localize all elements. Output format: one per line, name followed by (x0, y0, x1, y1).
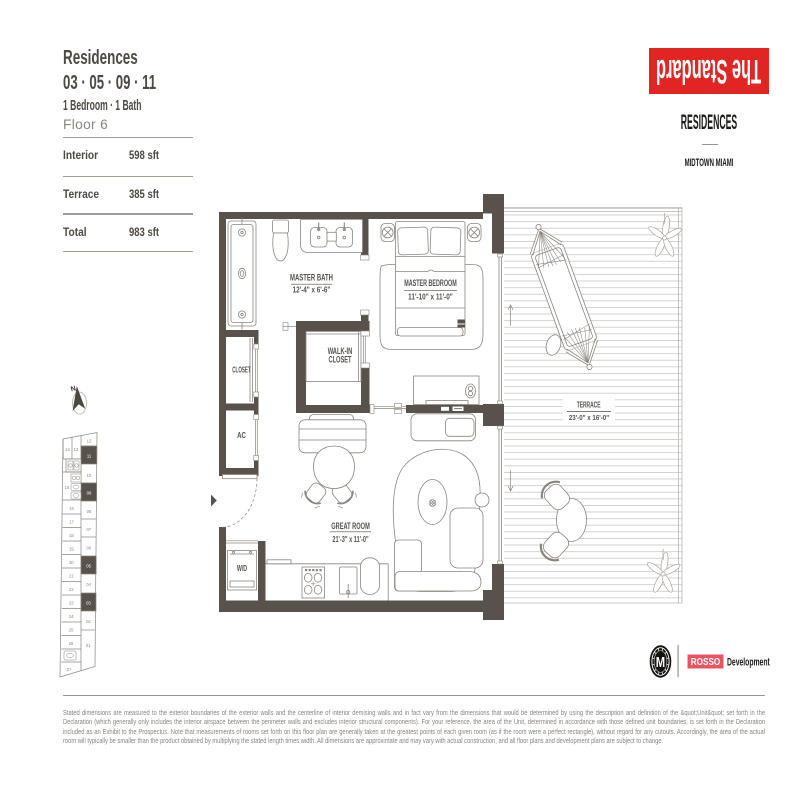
svg-text:08: 08 (87, 509, 92, 514)
svg-text:23'-0" x 16'-0": 23'-0" x 16'-0" (569, 414, 609, 422)
svg-text:10: 10 (87, 473, 92, 478)
svg-text:GREAT ROOM: GREAT ROOM (331, 521, 370, 532)
svg-text:13: 13 (74, 447, 79, 452)
svg-text:21'-3" x 11'-0": 21'-3" x 11'-0" (332, 536, 368, 544)
svg-text:05: 05 (86, 564, 91, 569)
svg-text:26: 26 (69, 641, 74, 646)
svg-text:06: 06 (86, 546, 91, 551)
svg-text:CLOSET: CLOSET (329, 354, 352, 365)
svg-text:25: 25 (69, 628, 74, 633)
svg-text:TERRACE: TERRACE (577, 401, 601, 409)
svg-text:W/D: W/D (237, 565, 247, 573)
svg-text:11: 11 (87, 454, 92, 459)
svg-text:N: N (70, 385, 77, 393)
svg-text:02: 02 (86, 619, 91, 624)
svg-text:27: 27 (67, 667, 72, 672)
svg-text:12: 12 (87, 439, 92, 444)
svg-text:12'-4" x 6'-6": 12'-4" x 6'-6" (293, 286, 331, 295)
svg-text:07: 07 (86, 527, 91, 532)
svg-text:19: 19 (69, 547, 74, 552)
svg-text:MASTER BATH: MASTER BATH (290, 272, 333, 283)
svg-text:15: 15 (65, 485, 70, 490)
svg-text:16: 16 (69, 506, 74, 511)
svg-text:MASTER BEDROOM: MASTER BEDROOM (404, 278, 456, 289)
svg-text:11'-10" x 11'-0": 11'-10" x 11'-0" (408, 293, 453, 302)
svg-text:20: 20 (69, 560, 74, 565)
svg-text:M: M (656, 653, 665, 670)
svg-text:17: 17 (69, 520, 74, 525)
svg-text:ROSSO: ROSSO (691, 655, 721, 667)
svg-text:18: 18 (69, 533, 74, 538)
svg-text:21: 21 (69, 574, 74, 579)
svg-text:14: 14 (65, 447, 70, 452)
svg-text:CLOSET: CLOSET (232, 366, 250, 375)
svg-text:Development: Development (727, 656, 770, 668)
svg-text:03: 03 (86, 601, 91, 606)
svg-text:23: 23 (69, 601, 74, 606)
svg-text:22: 22 (69, 587, 74, 592)
svg-text:04: 04 (86, 582, 91, 587)
svg-text:24: 24 (69, 614, 74, 619)
svg-text:09: 09 (87, 491, 92, 496)
svg-text:AC: AC (237, 431, 246, 440)
svg-text:01: 01 (86, 643, 91, 648)
